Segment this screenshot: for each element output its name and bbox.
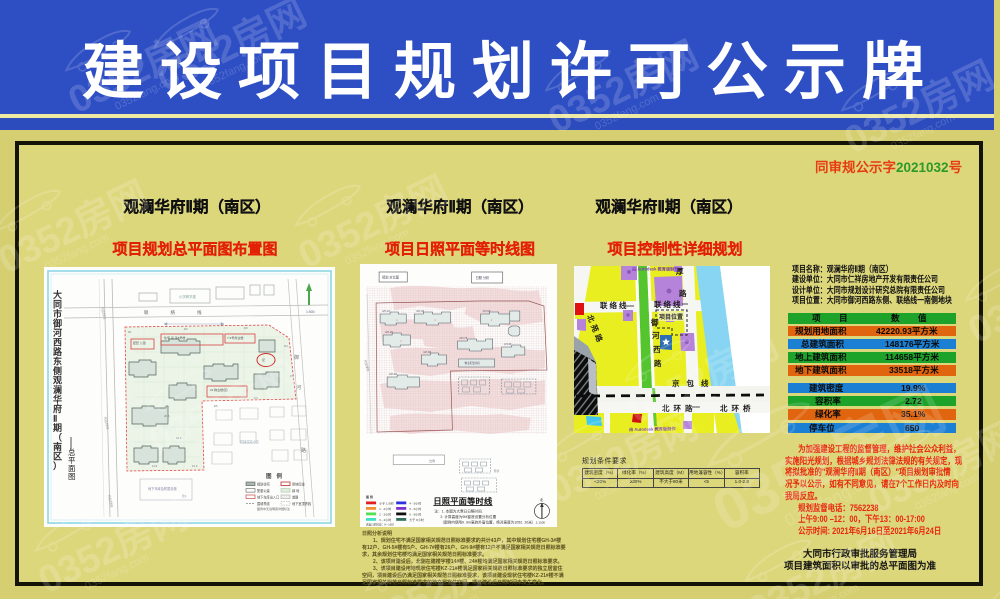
svg-text:联络线: 联络线 [654, 299, 683, 309]
svg-text:GH-3#: GH-3# [416, 309, 424, 313]
svg-text:用地红线: 用地红线 [292, 482, 306, 487]
svg-text:日照 分析: 日照 分析 [476, 275, 490, 280]
svg-text:路: 路 [679, 288, 687, 298]
svg-text:26.5: 26.5 [164, 414, 170, 418]
svg-text:图例中无说明者详细标注: 图例中无说明者详细标注 [257, 506, 290, 511]
svg-text:物业配套用房: 物业配套用房 [465, 361, 481, 365]
svg-text:2. 计算高度为9M窗底设置分析位置: 2. 计算高度为9M窗底设置分析位置 [440, 514, 496, 519]
svg-text:日照平面等时线: 日照平面等时线 [433, 496, 493, 506]
svg-text:2 - 3小时: 2 - 3小时 [379, 511, 391, 516]
svg-text:地下车库及附属设施: 地下车库及附属设施 [148, 486, 177, 491]
svg-text:4 - 5小时: 4 - 5小时 [409, 500, 421, 505]
svg-text:6 - 8小时: 6 - 8小时 [409, 511, 421, 516]
svg-text:大于 8小时: 大于 8小时 [409, 517, 424, 522]
svg-text:地下室顶界线: 地下室顶界线 [292, 501, 312, 506]
svg-text:配套公建: 配套公建 [257, 488, 271, 493]
svg-text:1:1500: 1:1500 [536, 521, 546, 525]
svg-text:GH-9#: GH-9# [389, 372, 397, 376]
svg-text:小学教学楼: 小学教学楼 [179, 294, 197, 299]
svg-text:现状: 现状 [494, 469, 500, 473]
svg-text:（图例内使用9. 9m高的外窗位置，绝对高度为1052. 1: （图例内使用9. 9m高的外窗位置，绝对高度为1052. 10米）. [440, 520, 536, 525]
svg-text:道路: 道路 [292, 494, 299, 499]
svg-text:配套 公建: 配套 公建 [133, 340, 146, 345]
svg-text:GH-2#: GH-2# [385, 330, 393, 334]
svg-text:配: 配 [262, 357, 265, 362]
svg-text:18.2: 18.2 [176, 436, 182, 440]
svg-text:围墙界线: 围墙界线 [257, 501, 271, 506]
svg-text:D2: D2 [184, 327, 188, 331]
svg-text:总平面图: 总平面图 [68, 447, 76, 481]
svg-text:比1: 比1 [182, 493, 187, 498]
svg-text:5 - 6小时: 5 - 6小时 [409, 506, 421, 511]
svg-text:代征绿地: 代征绿地 [100, 306, 108, 320]
svg-text:12.6: 12.6 [192, 464, 198, 468]
svg-text:代征绿地: 代征绿地 [107, 494, 115, 508]
svg-text:地下车库出入口: 地下车库出入口 [257, 494, 279, 499]
svg-text:京包线: 京包线 [672, 378, 716, 388]
svg-text:D1: D1 [128, 330, 132, 334]
svg-text:注：1. 本图为大寒日日照时间.: 注：1. 本图为大寒日日照时间. [434, 509, 482, 514]
svg-text:北环路: 北环路 [662, 403, 697, 413]
svg-text:项目位置: 项目位置 [659, 313, 683, 321]
svg-text:3 - 4小时: 3 - 4小时 [379, 517, 391, 522]
svg-text:GH-5#: GH-5# [483, 309, 491, 313]
svg-text:北: 北 [540, 497, 544, 502]
svg-text:图例: 图例 [266, 472, 287, 480]
svg-text:D3: D3 [244, 326, 248, 330]
svg-text:在建住宅小区: 在建住宅小区 [240, 439, 260, 444]
svg-text:GH-1#: GH-1# [382, 309, 390, 313]
svg-text:D4: D4 [284, 344, 288, 348]
svg-text:GH-7#: GH-7# [460, 336, 468, 340]
svg-text:D6: D6 [214, 404, 218, 408]
svg-text:1 - 2小时: 1 - 2小时 [379, 506, 391, 511]
svg-text:7-9号商业楼: 7-9号商业楼 [227, 335, 243, 340]
svg-text:北环桥: 北环桥 [720, 403, 755, 413]
svg-text:联络线: 联络线 [144, 309, 224, 316]
svg-text:1:500: 1:500 [306, 310, 315, 314]
svg-text:规划 对比图: 规划 对比图 [382, 275, 399, 280]
svg-text:22 物业楼(配): 22 物业楼(配) [210, 387, 228, 392]
svg-text:联络线: 联络线 [600, 300, 629, 310]
svg-text:D5: D5 [290, 374, 294, 378]
svg-text:GH-8#: GH-8# [423, 350, 431, 354]
svg-text:满窗日照时段：8—16时: 满窗日照时段：8—16时 [366, 523, 394, 527]
svg-text:代征绿地: 代征绿地 [103, 416, 111, 430]
svg-text:规划住宅: 规划住宅 [257, 482, 270, 487]
svg-text:比例: 比例 [429, 459, 435, 463]
svg-text:图 例: 图 例 [366, 494, 373, 499]
svg-text:绿 地: 绿 地 [292, 488, 300, 493]
svg-text:住宅 平 平8号楼: 住宅 平 平8号楼 [164, 335, 185, 340]
svg-text:11.9: 11.9 [152, 464, 158, 468]
svg-text:8.5: 8.5 [254, 396, 258, 400]
svg-text:GH-6#: GH-6# [504, 342, 512, 346]
svg-text:大同市御河西路东侧观澜华府Ⅱ期（南区）: 大同市御河西路东侧观澜华府Ⅱ期（南区） [52, 289, 63, 471]
svg-text:小于 1小时: 小于 1小时 [379, 500, 394, 505]
